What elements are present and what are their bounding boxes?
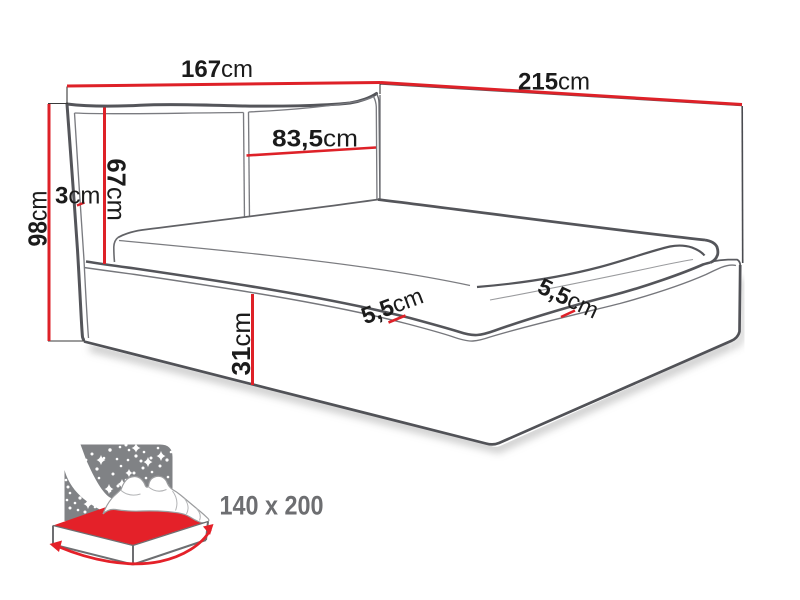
svg-text:167cm: 167cm — [181, 56, 253, 83]
svg-text:140 x 200: 140 x 200 — [220, 491, 324, 521]
svg-text:83,5cm: 83,5cm — [272, 126, 358, 153]
svg-text:67cm: 67cm — [101, 159, 129, 221]
svg-text:3cm: 3cm — [55, 183, 100, 210]
svg-text:31cm: 31cm — [226, 312, 256, 376]
svg-text:215cm: 215cm — [518, 69, 590, 96]
svg-text:98cm: 98cm — [24, 191, 53, 247]
